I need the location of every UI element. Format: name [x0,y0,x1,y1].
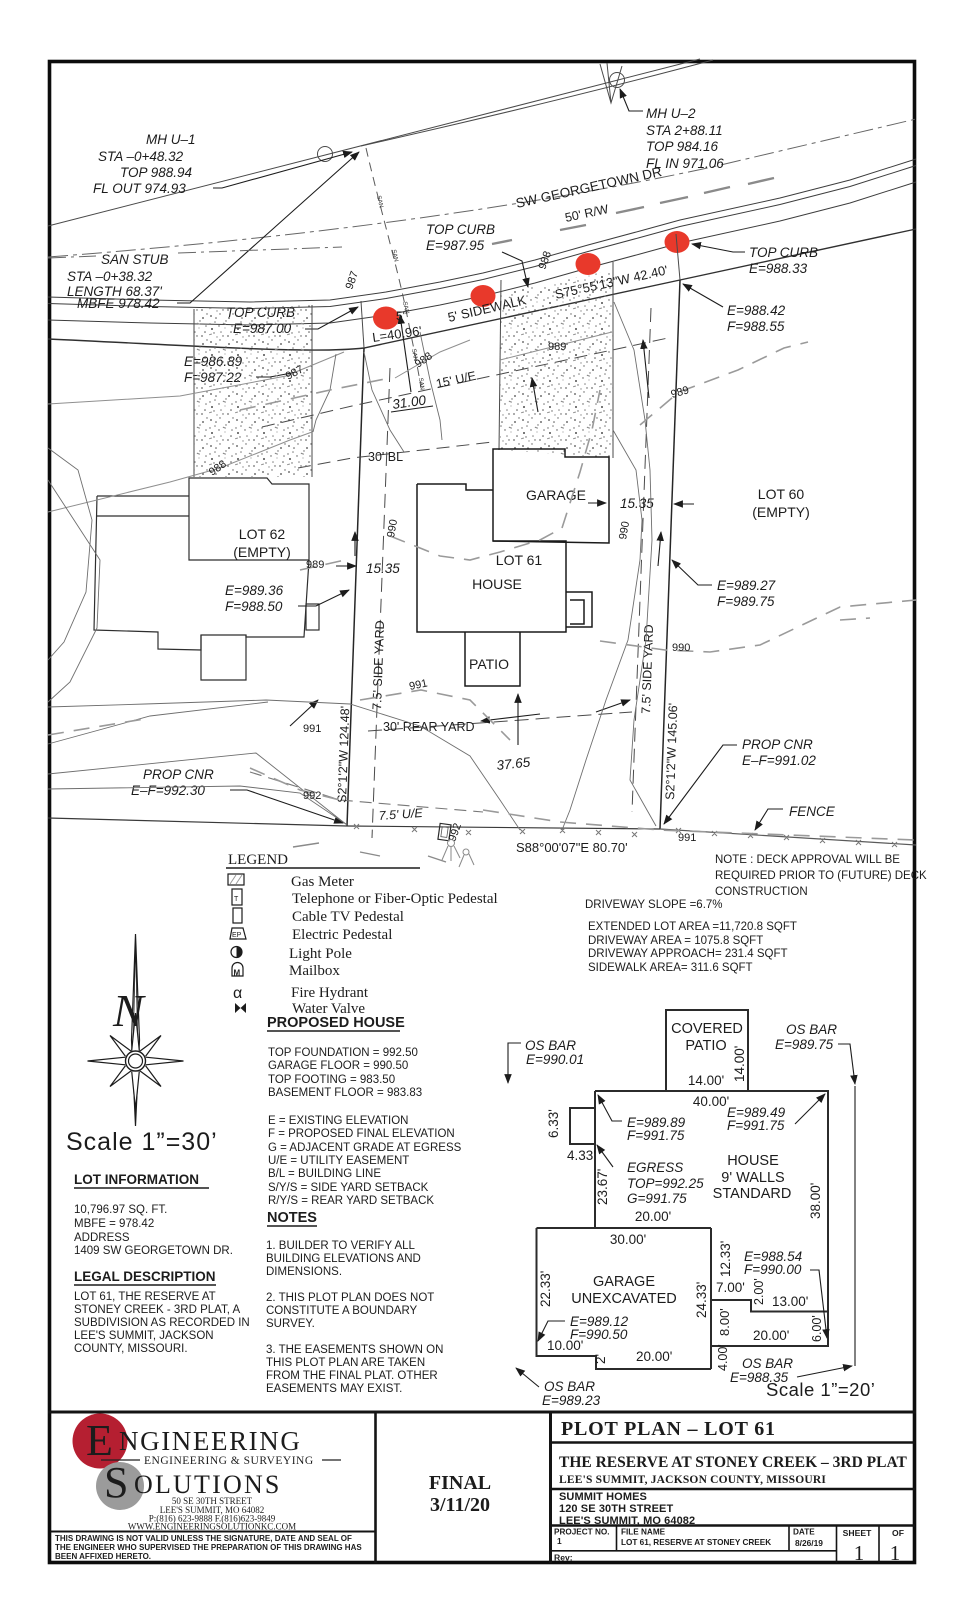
svg-text:12.33': 12.33' [718,1241,733,1277]
svg-text:BUILDING ELEVATIONS AND: BUILDING ELEVATIONS AND [266,1253,421,1265]
svg-text:E–F=991.02: E–F=991.02 [742,753,816,768]
svg-text:LEE'S SUMMIT, JACKSON: LEE'S SUMMIT, JACKSON [74,1330,214,1342]
svg-text:30' BL: 30' BL [368,450,403,464]
svg-text:WWW.ENGINEERINGSOLUTIONKC.COM: WWW.ENGINEERINGSOLUTIONKC.COM [128,1522,296,1532]
svg-text:BEEN AFFIXED HERETO.: BEEN AFFIXED HERETO. [55,1552,151,1561]
svg-text:4.33': 4.33' [567,1148,596,1163]
svg-text:987: 987 [344,270,362,291]
svg-text:SIDEWALK AREA= 311.6 SQFT: SIDEWALK AREA= 311.6 SQFT [588,962,753,974]
svg-text:40.00': 40.00' [693,1094,729,1109]
svg-text:B/L = BUILDING LINE: B/L = BUILDING LINE [268,1168,381,1180]
svg-text:PROP CNR: PROP CNR [742,737,813,752]
svg-text:20.00': 20.00' [753,1328,789,1343]
svg-text:LOT 61, RESERVE AT STONEY: LOT 61, RESERVE AT STONEY CREEK [621,1538,771,1547]
svg-text:S: S [104,1458,128,1507]
svg-text:PROPOSED HOUSE: PROPOSED HOUSE [267,1015,405,1031]
svg-text:PROP CNR: PROP CNR [143,767,214,782]
svg-text:CONSTRUCTION: CONSTRUCTION [715,886,808,898]
svg-text:EXTENDED LOT AREA =11,720.8 SQ: EXTENDED LOT AREA =11,720.8 SQFT [588,921,797,933]
svg-text:FROM THE FINAL PLAT. OTHER: FROM THE FINAL PLAT. OTHER [266,1370,438,1382]
svg-text:F=989.75: F=989.75 [717,594,775,609]
svg-text:23.67': 23.67' [595,1169,610,1205]
svg-text:MBFE = 978.42: MBFE = 978.42 [74,1218,154,1230]
svg-text:S/Y/S = SIDE YARD SETBACK: S/Y/S = SIDE YARD SETBACK [268,1182,429,1194]
svg-text:U/E = UTILITY EASEMENT: U/E = UTILITY EASEMENT [268,1155,409,1167]
svg-text:TOP FOUNDATION = 992.50: TOP FOUNDATION = 992.50 [268,1047,418,1059]
svg-text:HOUSE: HOUSE [472,576,522,592]
svg-text:Scale 1”=20’: Scale 1”=20’ [766,1379,875,1400]
svg-text:LEGEND: LEGEND [228,852,288,868]
svg-text:990: 990 [672,642,690,654]
svg-text:GARAGE FLOOR = 990.50: GARAGE FLOOR = 990.50 [268,1060,408,1072]
svg-text:7.5' SIDE YARD: 7.5' SIDE YARD [370,620,387,710]
svg-text:PROJECT NO.: PROJECT NO. [554,1528,610,1537]
svg-text:LOT INFORMATION: LOT INFORMATION [74,1172,199,1187]
svg-text:TOP 984.16: TOP 984.16 [646,139,719,154]
svg-text:OS BAR: OS BAR [786,1022,837,1037]
svg-text:SAN: SAN [375,195,384,208]
svg-text:S2°1'2"W 145.06': S2°1'2"W 145.06' [663,703,680,800]
svg-text:S2°1'2"W 124.48': S2°1'2"W 124.48' [335,706,352,803]
svg-text:MH U–2: MH U–2 [646,106,696,121]
svg-text:989: 989 [548,341,566,353]
svg-text:Light Pole: Light Pole [289,946,352,962]
svg-text:F=991.75: F=991.75 [727,1118,785,1133]
svg-text:T: T [234,896,239,903]
svg-text:PATIO: PATIO [469,656,509,672]
svg-text:PLOT PLAN – LOT 61: PLOT PLAN – LOT 61 [561,1418,776,1440]
svg-text:38.00': 38.00' [808,1183,823,1219]
svg-text:DRIVEWAY AREA = 1075.8 SQFT: DRIVEWAY AREA = 1075.8 SQFT [588,935,763,947]
svg-text:SAN: SAN [390,249,399,262]
svg-text:15.35: 15.35 [620,496,654,511]
svg-text:BASEMENT FLOOR = 983.83: BASEMENT FLOOR = 983.83 [268,1087,422,1099]
svg-text:1. BUILDER TO VERIFY ALL: 1. BUILDER TO VERIFY ALL [266,1240,416,1252]
svg-text:990: 990 [385,518,400,538]
svg-text:Electric Pedestal: Electric Pedestal [292,927,392,943]
svg-text:SUMMIT HOMES: SUMMIT HOMES [559,1491,647,1503]
svg-text:LEE'S SUMMIT, JACKSON COUNT: LEE'S SUMMIT, JACKSON COUNTY, MISSOURI [559,1474,826,1486]
svg-text:E=988.42: E=988.42 [727,303,786,318]
svg-text:OLUTIONS: OLUTIONS [134,1470,282,1499]
svg-text:E = EXISTING ELEVATION: E = EXISTING ELEVATION [268,1115,409,1127]
svg-text:DRIVEWAY APPROACH= 231.4 SQFT: DRIVEWAY APPROACH= 231.4 SQFT [588,948,788,960]
svg-text:E=989.36: E=989.36 [225,583,284,598]
svg-text:8/26/19: 8/26/19 [795,1538,823,1548]
svg-text:LEGAL DESCRIPTION: LEGAL DESCRIPTION [74,1269,216,1284]
svg-text:Scale 1”=30’: Scale 1”=30’ [66,1128,218,1156]
svg-text:DIMENSIONS.: DIMENSIONS. [266,1266,342,1278]
svg-text:7.00': 7.00' [716,1280,745,1295]
svg-text:COUNTY, MISSOURI.: COUNTY, MISSOURI. [74,1343,188,1355]
svg-text:EASEMENTS MAY EXIST.: EASEMENTS MAY EXIST. [266,1383,402,1395]
svg-text:E–F=992.30: E–F=992.30 [131,783,205,798]
svg-text:991: 991 [678,832,696,844]
svg-text:THIS DRAWING IS NOT VALID: THIS DRAWING IS NOT VALID UNLESS THE SIG… [55,1534,352,1543]
svg-text:STONEY CREEK - 3RD PLAT, A: STONEY CREEK - 3RD PLAT, A [74,1304,240,1316]
svg-text:989: 989 [306,559,324,571]
svg-text:MBFE 978.42: MBFE 978.42 [77,296,160,311]
svg-text:DRIVEWAY SLOPE =6.7%: DRIVEWAY SLOPE =6.7% [585,899,723,911]
svg-text:SUBDIVISION AS RECORDED IN: SUBDIVISION AS RECORDED IN [74,1317,250,1329]
svg-text:Telephone or Fiber-Optic Pedes: Telephone or Fiber-Optic Pedestal [292,891,498,907]
svg-text:COVERED: COVERED [671,1021,743,1037]
svg-text:1409 SW GEORGETOWN DR.: 1409 SW GEORGETOWN DR. [74,1245,233,1257]
svg-text:α: α [233,985,242,1002]
svg-text:6.33': 6.33' [546,1109,561,1138]
svg-text:THE RESERVE AT STONEY CREE: THE RESERVE AT STONEY CREEK – 3RD PLAT [559,1454,908,1471]
svg-text:F=990.50: F=990.50 [570,1327,628,1342]
svg-text:E=989.75: E=989.75 [775,1037,834,1052]
svg-text:Cable TV Pedestal: Cable TV Pedestal [292,909,404,925]
svg-text:THIS PLOT PLAN ARE TAKEN: THIS PLOT PLAN ARE TAKEN [266,1357,425,1369]
svg-text:OS BAR: OS BAR [742,1356,793,1371]
svg-text:13.00': 13.00' [772,1294,808,1309]
svg-text:LEE'S SUMMIT, MO 64082: LEE'S SUMMIT, MO 64082 [559,1515,695,1527]
svg-text:F=988.50: F=988.50 [225,599,283,614]
svg-text:37.65: 37.65 [496,754,532,773]
svg-text:1: 1 [557,1536,562,1546]
svg-text:1: 1 [890,1541,901,1565]
svg-text:9' WALLS: 9' WALLS [721,1170,784,1186]
svg-text:CONSTITUTE A BOUNDARY: CONSTITUTE A BOUNDARY [266,1305,418,1317]
svg-text:E=989.27: E=989.27 [717,578,776,593]
svg-text:ADDRESS: ADDRESS [74,1232,130,1244]
svg-text:E=989.23: E=989.23 [542,1393,601,1408]
svg-text:F = PROPOSED FINAL ELEVATION: F = PROPOSED FINAL ELEVATION [268,1128,455,1140]
svg-text:2': 2' [593,1354,608,1364]
svg-text:N: N [112,985,146,1036]
svg-text:991: 991 [303,723,321,735]
svg-text:Fire Hydrant: Fire Hydrant [291,985,369,1001]
svg-text:992: 992 [303,790,321,802]
svg-text:MH U–1: MH U–1 [146,132,196,147]
svg-text:NOTES: NOTES [267,1210,317,1226]
svg-text:(EMPTY): (EMPTY) [752,504,810,520]
svg-text:LOT 61, THE RESERVE AT: LOT 61, THE RESERVE AT [74,1291,216,1303]
svg-text:7.5' U/E: 7.5' U/E [378,806,424,823]
svg-text:S88°00'07"E 80.70': S88°00'07"E 80.70' [516,840,628,855]
svg-text:F=988.55: F=988.55 [727,319,785,334]
svg-text:STA –0+38.32: STA –0+38.32 [67,269,153,284]
svg-text:DATE: DATE [793,1528,815,1537]
svg-text:THE ENGINEER WHO SUPERVISED: THE ENGINEER WHO SUPERVISED THE PREPARAT… [55,1543,362,1552]
svg-text:STANDARD: STANDARD [713,1186,792,1202]
svg-text:6.00': 6.00' [810,1315,824,1342]
svg-text:LOT 61: LOT 61 [496,552,543,568]
svg-text:1: 1 [854,1541,865,1565]
svg-text:F=990.00: F=990.00 [744,1262,802,1277]
svg-text:SW GEORGETOWN DR: SW GEORGETOWN DR [514,164,663,211]
svg-text:OS BAR: OS BAR [544,1379,595,1394]
svg-text:LOT 60: LOT 60 [758,486,805,502]
svg-text:TOP FOOTING = 983.50: TOP FOOTING = 983.50 [268,1074,395,1086]
svg-text:FINAL: FINAL [429,1472,491,1494]
svg-text:EP: EP [232,932,242,939]
svg-text:OF: OF [892,1528,904,1538]
svg-text:SHEET: SHEET [843,1528,872,1538]
svg-text:EGRESS: EGRESS [627,1160,683,1175]
svg-text:LOT 62: LOT 62 [239,526,286,542]
svg-text:FILE NAME: FILE NAME [621,1528,666,1537]
svg-text:Rev:: Rev: [554,1553,573,1563]
svg-text:REQUIRED PRIOR TO (FUTURE) DEC: REQUIRED PRIOR TO (FUTURE) DECK [715,870,927,882]
svg-text:TOP=992.25: TOP=992.25 [627,1176,704,1191]
svg-text:ENGINEERING & SURVEYING: ENGINEERING & SURVEYING [144,1455,314,1467]
svg-text:SAN STUB: SAN STUB [101,252,169,267]
svg-text:24.33': 24.33' [694,1282,709,1318]
svg-text:15.35: 15.35 [366,561,400,576]
svg-text:8.00': 8.00' [717,1308,732,1336]
svg-text:30.00': 30.00' [610,1232,646,1247]
svg-text:HOUSE: HOUSE [727,1153,779,1169]
svg-text:(EMPTY): (EMPTY) [233,544,291,560]
svg-text:22.33': 22.33' [538,1271,553,1307]
svg-text:G=991.75: G=991.75 [627,1191,687,1206]
svg-text:UNEXCAVATED: UNEXCAVATED [571,1291,677,1307]
svg-text:Mailbox: Mailbox [289,963,340,979]
svg-text:14.00': 14.00' [732,1046,747,1082]
svg-text:990: 990 [617,520,632,540]
svg-text:2. THIS PLOT PLAN DOES NOT: 2. THIS PLOT PLAN DOES NOT [266,1292,434,1304]
svg-text:30' REAR YARD: 30' REAR YARD [383,720,475,734]
svg-text:SURVEY.: SURVEY. [266,1318,315,1330]
svg-text:PATIO: PATIO [685,1038,726,1054]
svg-text:E=990.01: E=990.01 [526,1052,584,1067]
svg-text:14.00': 14.00' [688,1073,724,1088]
svg-text:E=987.95: E=987.95 [426,238,485,253]
svg-text:STA –0+48.32: STA –0+48.32 [98,149,184,164]
svg-text:4.00': 4.00' [716,1344,730,1371]
svg-text:FL OUT 974.93: FL OUT 974.93 [93,181,186,196]
svg-text:Gas Meter: Gas Meter [291,874,354,890]
svg-text:TOP CURB: TOP CURB [426,222,495,237]
svg-text:G = ADJACENT GRADE AT EGRESS: G = ADJACENT GRADE AT EGRESS [268,1142,462,1154]
svg-text:989: 989 [670,384,691,401]
svg-text:E=988.33: E=988.33 [749,261,808,276]
svg-text:120 SE 30TH STREET: 120 SE 30TH STREET [559,1503,673,1515]
svg-text:20.00': 20.00' [635,1209,671,1224]
svg-text:2.00': 2.00' [752,1278,766,1305]
svg-text:10,796.97 SQ. FT.: 10,796.97 SQ. FT. [74,1204,167,1216]
svg-text:OS BAR: OS BAR [525,1038,576,1053]
svg-text:STA 2+88.11: STA 2+88.11 [646,123,723,138]
svg-text:GARAGE: GARAGE [526,487,586,503]
svg-text:F=991.75: F=991.75 [627,1128,685,1143]
svg-text:R/Y/S = REAR YARD SETBACK: R/Y/S = REAR YARD SETBACK [268,1195,434,1207]
svg-text:TOP CURB: TOP CURB [749,245,818,260]
svg-text:GARAGE: GARAGE [593,1274,655,1290]
svg-text:SAN: SAN [417,377,425,390]
svg-text:3. THE EASEMENTS SHOWN ON: 3. THE EASEMENTS SHOWN ON [266,1344,443,1356]
svg-text:50' R/W: 50' R/W [564,202,610,225]
svg-text:NOTE : DECK APPROVAL WILL BE: NOTE : DECK APPROVAL WILL BE [715,854,900,866]
svg-text:988: 988 [537,250,555,271]
svg-text:NGINEERING: NGINEERING [119,1426,301,1456]
svg-text:FENCE: FENCE [789,804,836,819]
svg-text:3/11/20: 3/11/20 [430,1494,490,1516]
svg-text:15' U/E: 15' U/E [435,369,478,391]
svg-text:20.00': 20.00' [636,1349,672,1364]
svg-text:TOP 988.94: TOP 988.94 [120,165,192,180]
svg-text:M: M [234,969,241,978]
